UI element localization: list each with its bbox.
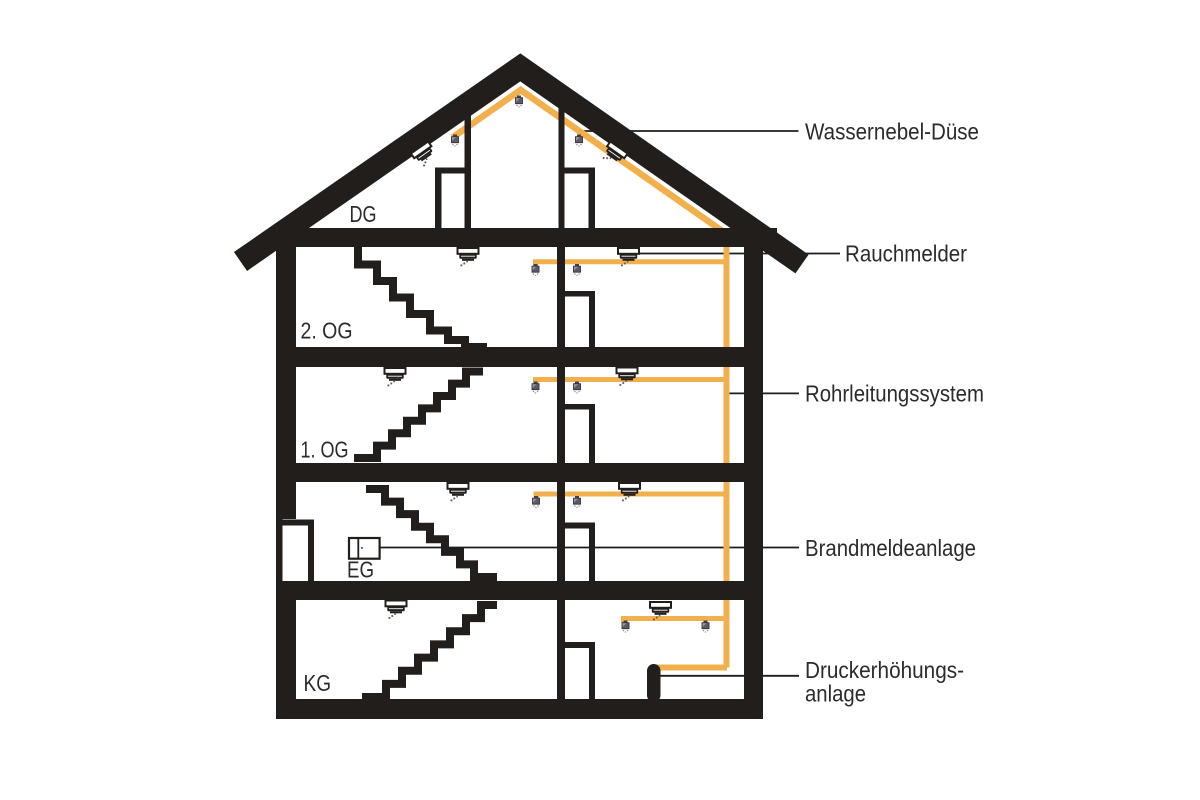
svg-text:anlage: anlage <box>805 681 866 707</box>
svg-text:Rohrleitungssystem: Rohrleitungssystem <box>805 381 984 407</box>
svg-text:KG: KG <box>304 670 332 696</box>
svg-text:Rauchmelder: Rauchmelder <box>845 241 967 267</box>
svg-text:Druckerhöhungs-: Druckerhöhungs- <box>805 657 964 683</box>
svg-text:Brandmeldeanlage: Brandmeldeanlage <box>805 535 976 561</box>
svg-text:Wassernebel-Düse: Wassernebel-Düse <box>805 119 979 145</box>
svg-text:1. OG: 1. OG <box>301 437 349 463</box>
svg-text:EG: EG <box>347 557 374 583</box>
svg-text:DG: DG <box>350 201 377 227</box>
svg-text:2. OG: 2. OG <box>301 318 353 344</box>
